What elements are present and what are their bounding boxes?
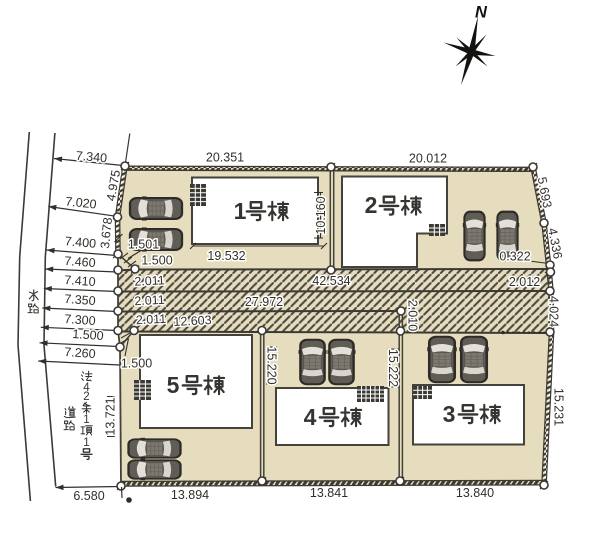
svg-text:1.501: 1.501: [128, 238, 159, 252]
svg-text:7.340: 7.340: [75, 149, 107, 166]
svg-text:2: 2: [365, 192, 378, 218]
svg-text:42.534: 42.534: [312, 274, 350, 288]
svg-text:1: 1: [83, 437, 89, 449]
svg-text:0.322: 0.322: [499, 250, 530, 264]
svg-text:20.012: 20.012: [409, 152, 447, 166]
svg-text:4.024: 4.024: [547, 296, 561, 327]
svg-text:2.010: 2.010: [406, 300, 420, 331]
svg-text:15.222: 15.222: [386, 349, 400, 387]
svg-text:20.351: 20.351: [206, 151, 244, 165]
svg-text:5: 5: [167, 372, 180, 398]
svg-text:2.011: 2.011: [134, 273, 165, 289]
svg-text:10.160: 10.160: [314, 196, 328, 234]
svg-text:1.500: 1.500: [72, 327, 104, 343]
svg-text:13.840: 13.840: [456, 486, 494, 500]
svg-text:1: 1: [83, 414, 89, 426]
svg-text:N: N: [475, 4, 488, 22]
svg-text:2.011: 2.011: [134, 293, 165, 309]
svg-text:7.350: 7.350: [64, 292, 96, 308]
svg-text:12.603: 12.603: [173, 313, 212, 329]
svg-text:4: 4: [304, 404, 317, 430]
svg-text:2.012: 2.012: [509, 275, 540, 289]
svg-text:27.972: 27.972: [245, 295, 283, 309]
svg-text:15.231: 15.231: [552, 388, 566, 426]
svg-text:13.721: 13.721: [104, 397, 118, 435]
svg-text:13.894: 13.894: [171, 488, 209, 502]
svg-text:19.532: 19.532: [207, 249, 245, 263]
svg-text:2.011: 2.011: [136, 312, 167, 328]
svg-text:7.460: 7.460: [64, 254, 96, 270]
svg-text:3: 3: [443, 401, 456, 427]
svg-text:7.260: 7.260: [64, 345, 96, 361]
svg-text:15.220: 15.220: [265, 346, 279, 384]
svg-text:1.500: 1.500: [141, 254, 172, 268]
svg-text:6.580: 6.580: [73, 489, 104, 503]
svg-text:1: 1: [234, 198, 247, 224]
svg-text:2: 2: [83, 391, 89, 403]
svg-text:7.300: 7.300: [64, 312, 96, 328]
svg-text:7.400: 7.400: [64, 234, 96, 251]
svg-text:13.841: 13.841: [310, 486, 348, 500]
svg-text:1.500: 1.500: [121, 357, 152, 371]
svg-text:7.410: 7.410: [64, 273, 96, 289]
svg-text:3.678: 3.678: [98, 217, 115, 250]
